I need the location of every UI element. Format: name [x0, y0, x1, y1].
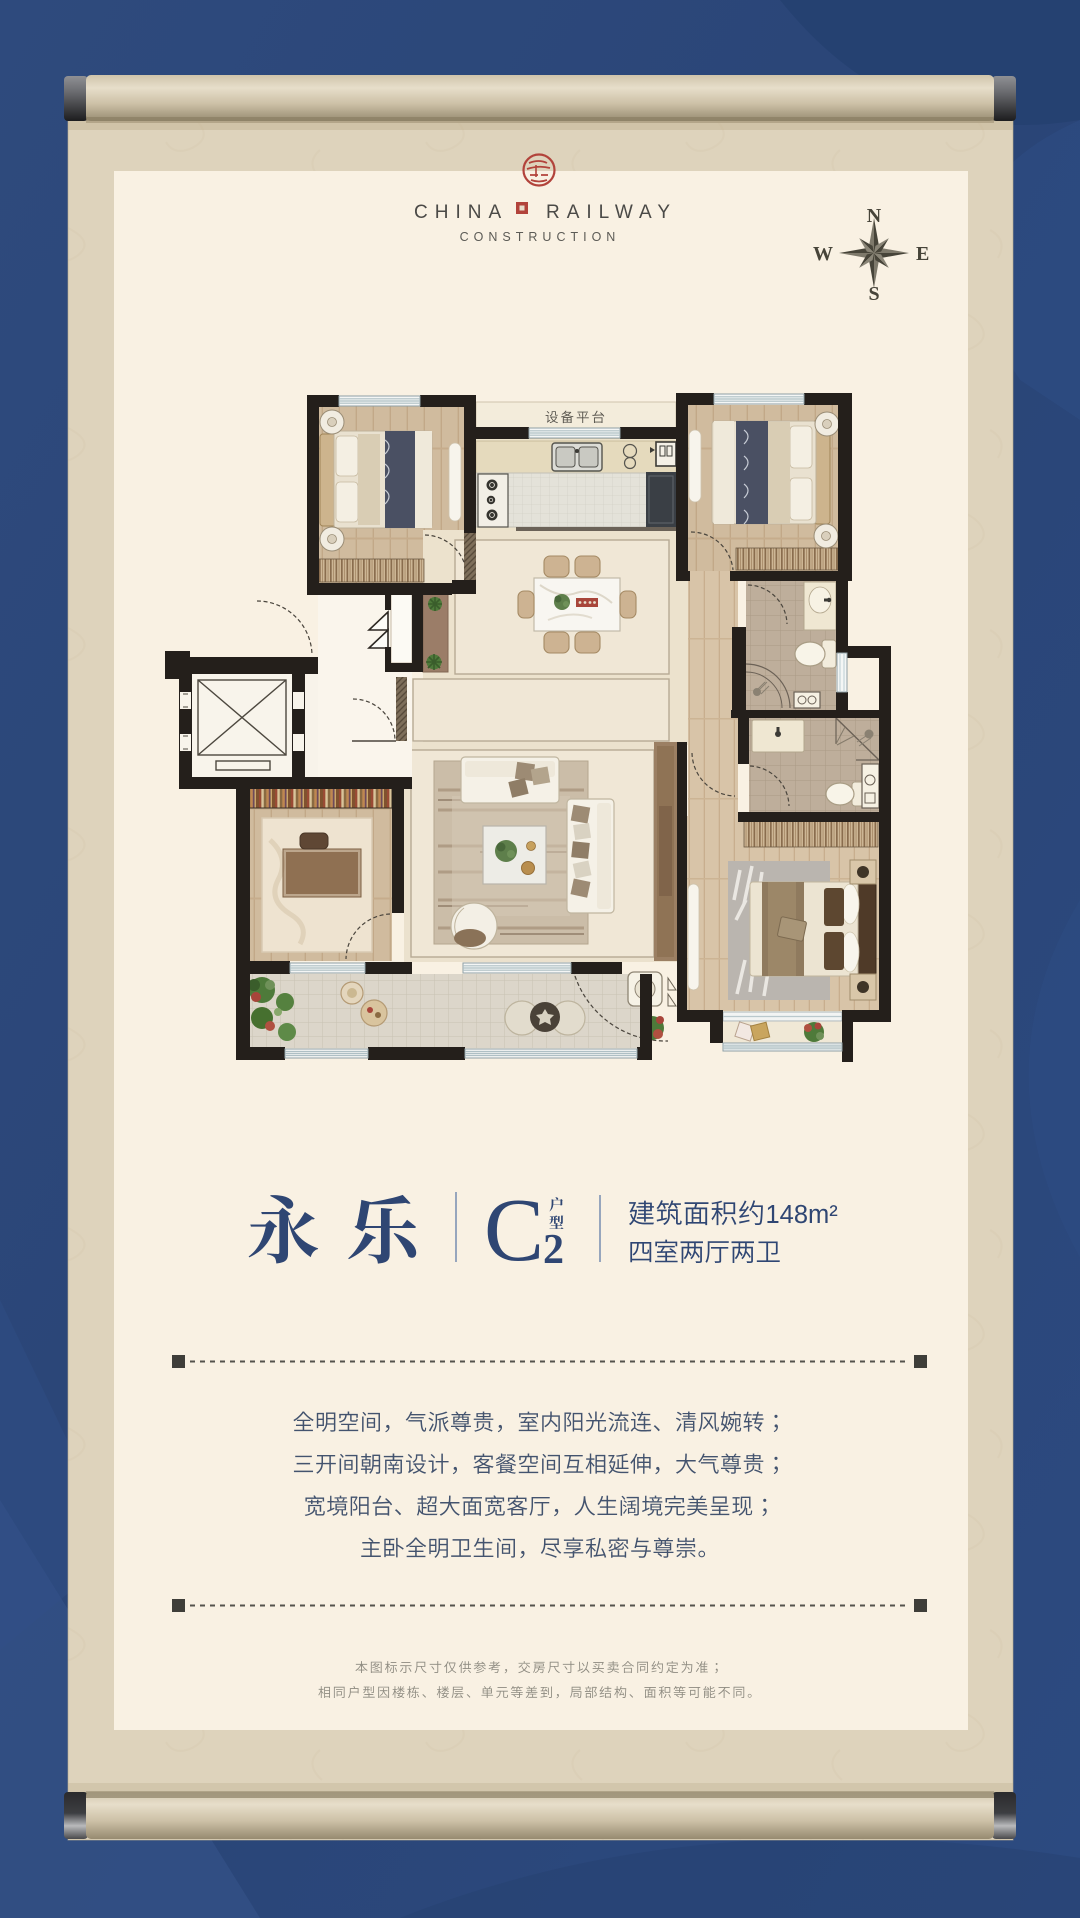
svg-text:W: W [813, 243, 833, 265]
svg-text:型: 型 [549, 1212, 564, 1233]
svg-text:N: N [867, 205, 882, 227]
svg-text:四室两厅两卫: 四室两厅两卫 [628, 1232, 781, 1269]
svg-text:本图标示尺寸仅供参考，交房尺寸以买卖合同约定为准；: 本图标示尺寸仅供参考，交房尺寸以买卖合同约定为准； [355, 1657, 725, 1676]
svg-text:2: 2 [543, 1227, 564, 1273]
svg-text:CONSTRUCTION: CONSTRUCTION [460, 230, 621, 244]
svg-text:E: E [916, 243, 929, 265]
svg-text:C: C [484, 1181, 544, 1280]
svg-text:永乐: 永乐 [247, 1173, 445, 1278]
svg-text:三开间朝南设计，客餐空间互相延伸，大气尊贵；: 三开间朝南设计，客餐空间互相延伸，大气尊贵； [292, 1447, 787, 1479]
svg-text:CHINA: CHINA [414, 202, 508, 223]
svg-text:宽境阳台、超大面宽客厅，人生阔境完美呈现；: 宽境阳台、超大面宽客厅，人生阔境完美呈现； [304, 1489, 777, 1521]
svg-text:主卧全明卫生间，尽享私密与尊崇。: 主卧全明卫生间，尽享私密与尊崇。 [360, 1531, 720, 1563]
svg-text:设备平台: 设备平台 [545, 406, 607, 426]
svg-text:全明空间，气派尊贵，室内阳光流连、清风婉转；: 全明空间，气派尊贵，室内阳光流连、清风婉转； [292, 1405, 787, 1437]
svg-text:S: S [868, 283, 879, 305]
svg-text:RAILWAY: RAILWAY [546, 202, 677, 223]
svg-text:相同户型因楼栋、楼层、单元等差到，局部结构、面积等可能不同。: 相同户型因楼栋、楼层、单元等差到，局部结构、面积等可能不同。 [318, 1682, 762, 1701]
